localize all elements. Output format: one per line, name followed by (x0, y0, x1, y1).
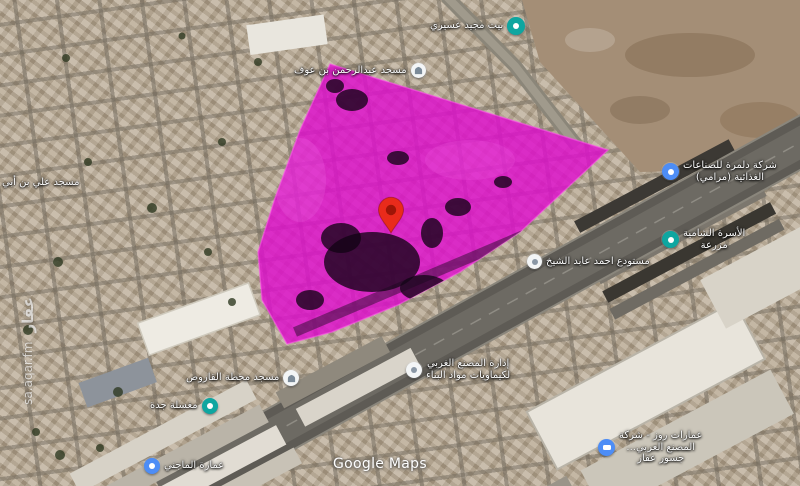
poi-label-text: عمارات روز - شركة المصنع العربي... جسور … (619, 430, 702, 465)
mosque-icon (283, 370, 299, 386)
poi-label-beit-majid-asiri[interactable]: بيت مجيد عسيري (430, 17, 525, 35)
poi-label-usra-shamiya-farm[interactable]: الأسرة الشامية مزرعة (662, 228, 745, 251)
poi-label-text: شركة دلمرة للصناعات الغذائية (مرامي) (683, 160, 777, 183)
poi-label-roz-buildings[interactable]: عمارات روز - شركة المصنع العربي... جسور … (598, 430, 702, 465)
poi-blue-icon (144, 458, 160, 474)
poi-white-icon (527, 254, 542, 269)
poi-teal-icon (662, 231, 679, 248)
poi-label-text: عمارة الماجني (164, 460, 224, 472)
poi-blue-icon (662, 163, 679, 180)
aqar-watermark: sa.aqar.fm عقار (17, 287, 39, 415)
top-building (246, 14, 327, 55)
poi-white-icon (406, 362, 422, 378)
poi-label-text: مسجد علي بن أبي (2, 177, 79, 189)
aqar-domain-text: sa.aqar.fm (21, 342, 35, 405)
poi-label-majni-building[interactable]: عمارة الماجني (144, 458, 224, 474)
mosque-icon (411, 63, 426, 78)
poi-label-text: مغسلة جدة (150, 400, 198, 412)
poi-label-masjid-ali[interactable]: مسجد علي بن أبي (2, 177, 79, 189)
poi-label-text: مسجد محطة القاروص (186, 372, 279, 384)
poi-label-text: مسجد عبدالرحمن بن عوف (294, 65, 407, 77)
poi-label-text: مستودع احمد عابد الشيخ (546, 256, 650, 268)
poi-label-western-factory-admin[interactable]: إدارة المصنع الغربي لكيماويات مواد البنا… (406, 358, 510, 381)
poi-label-masjid-abdulrahman[interactable]: مسجد عبدالرحمن بن عوف (294, 63, 426, 78)
poi-label-text: الأسرة الشامية مزرعة (683, 228, 745, 251)
poi-teal-icon (507, 17, 525, 35)
poi-label-text: إدارة المصنع الغربي لكيماويات مواد البنا… (426, 358, 510, 381)
poi-label-warehouse-ahmed[interactable]: مستودع احمد عابد الشيخ (527, 254, 650, 269)
aqar-logo: عقار (19, 297, 37, 332)
lodging-icon (598, 439, 615, 456)
poi-teal-icon (202, 398, 218, 414)
poi-label-dalmara-foods[interactable]: شركة دلمرة للصناعات الغذائية (مرامي) (662, 160, 777, 183)
google-maps-watermark[interactable]: Google Maps (333, 456, 427, 472)
poi-label-masjid-qaroos[interactable]: مسجد محطة القاروص (186, 370, 299, 386)
satellite-map[interactable]: بيت مجيد عسيري مسجد عبدالرحمن بن عوف مسج… (0, 0, 800, 486)
poi-label-laundry-jeddah[interactable]: مغسلة جدة (150, 398, 218, 414)
poi-label-text: بيت مجيد عسيري (430, 20, 503, 32)
